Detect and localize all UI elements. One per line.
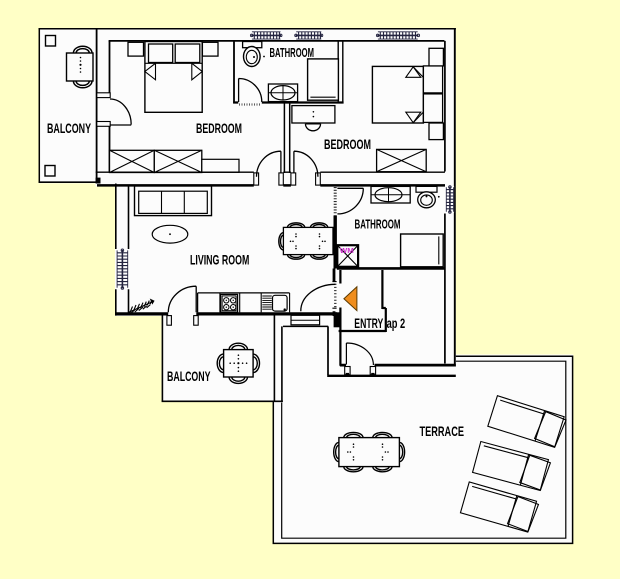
svg-text:WM: WM bbox=[340, 248, 354, 255]
svg-text:TERRACE: TERRACE bbox=[420, 424, 465, 439]
svg-text:BATHROOM: BATHROOM bbox=[355, 217, 401, 232]
svg-text:BALCONY: BALCONY bbox=[47, 121, 91, 136]
svg-text:LIVING ROOM: LIVING ROOM bbox=[190, 252, 249, 267]
svg-text:ap 2: ap 2 bbox=[387, 316, 406, 331]
svg-text:BATHROOM: BATHROOM bbox=[270, 46, 315, 60]
svg-text:BALCONY: BALCONY bbox=[167, 369, 211, 384]
svg-text:BEDROOM: BEDROOM bbox=[324, 137, 371, 152]
svg-text:BEDROOM: BEDROOM bbox=[196, 121, 242, 136]
svg-text:ENTRY: ENTRY bbox=[354, 316, 383, 331]
